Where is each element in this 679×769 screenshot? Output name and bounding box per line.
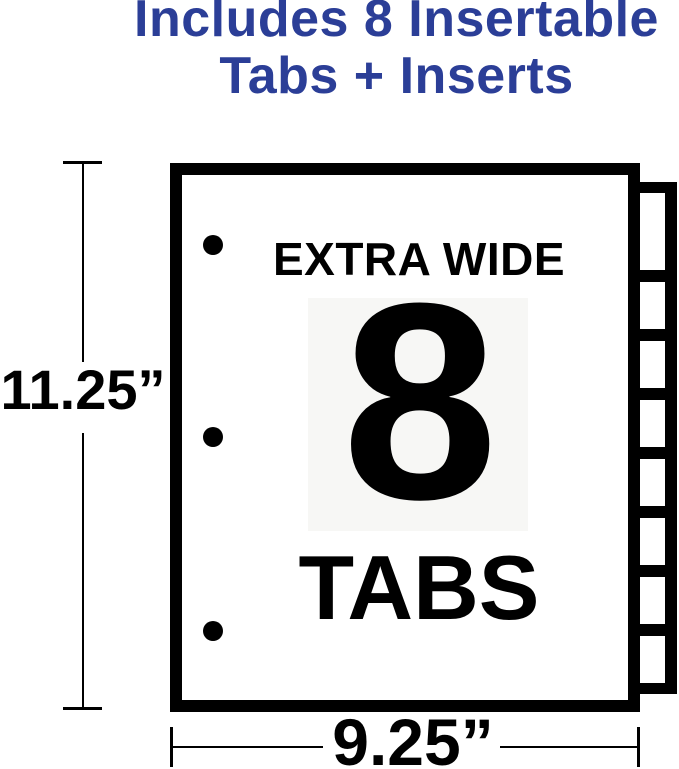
tab-slot-2 — [640, 282, 665, 329]
binder-hole-top — [203, 235, 223, 255]
height-dimension-line-lower — [82, 433, 84, 709]
width-dimension-line-right — [500, 746, 639, 748]
height-dimension-label: 11.25” — [0, 362, 165, 418]
headline-line-1: Includes 8 Insertable — [57, 0, 679, 48]
tab-slot-5 — [640, 459, 665, 506]
width-dimension-cap-right — [637, 727, 640, 767]
tab-count-number: 8 — [342, 262, 498, 542]
headline: Includes 8 Insertable Tabs + Inserts — [57, 0, 679, 105]
binder-hole-bottom — [203, 621, 223, 641]
width-dimension-label: 9.25” — [332, 709, 493, 769]
height-dimension-line-upper — [82, 161, 84, 362]
tab-slot-8 — [640, 636, 665, 683]
headline-line-2: Tabs + Inserts — [57, 48, 679, 105]
tabs-label: TABS — [299, 543, 540, 634]
binder-hole-middle — [203, 427, 223, 447]
width-dimension-line-left — [170, 746, 323, 748]
product-diagram-image: Includes 8 Insertable Tabs + Inserts EXT… — [0, 0, 679, 769]
tab-slot-1 — [640, 193, 665, 270]
tab-slot-7 — [640, 577, 665, 624]
tab-slot-3 — [640, 341, 665, 388]
tab-slot-4 — [640, 400, 665, 447]
height-dimension-cap-bottom — [63, 707, 102, 710]
tab-slot-6 — [640, 518, 665, 565]
tab-ladder — [628, 182, 677, 694]
